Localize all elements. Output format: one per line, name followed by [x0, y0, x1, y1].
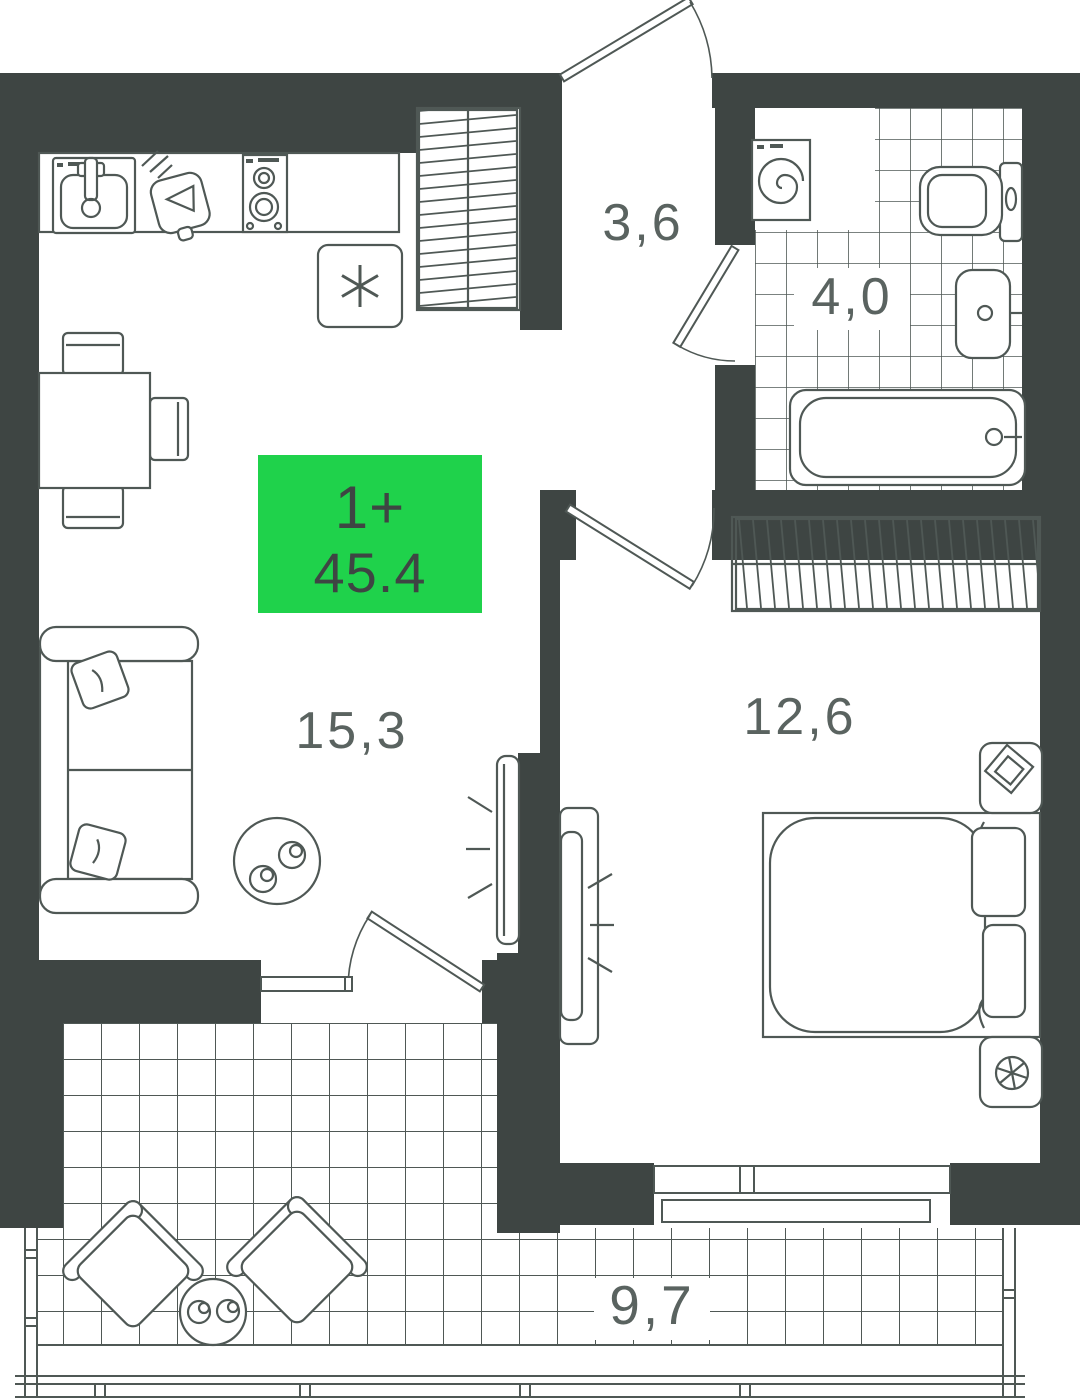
bathroom-area-label: 4,0 [811, 268, 892, 326]
balcony-table-icon [180, 1279, 246, 1345]
nightstand-lamp-icon [980, 743, 1042, 813]
living-kitchen-area-label: 15,3 [295, 702, 408, 760]
living-room-window-icon [261, 977, 352, 991]
sofa-icon [40, 627, 198, 913]
coffee-table-icon [234, 818, 320, 904]
apartment-badge: 1+ 45.4 [258, 455, 482, 613]
bedroom-window-icon [654, 1163, 950, 1225]
floor-plan-page: 3,6 4,0 15,3 12,6 9,7 1+ 45.4 [0, 0, 1080, 1400]
balcony-area-label: 9,7 [609, 1274, 694, 1336]
nightstand-fan-icon [980, 1037, 1042, 1107]
hallway-area-label: 3,6 [602, 194, 683, 252]
kitchen-sink-icon [53, 158, 135, 233]
wardrobe-hatch-icon [732, 517, 1040, 611]
apartment-type-label: 1+ [335, 474, 405, 541]
fridge-snowflake-icon [318, 245, 402, 327]
stove-icon [243, 155, 287, 232]
apartment-area-value: 45.4 [314, 541, 427, 604]
bedroom-area-label: 12,6 [743, 688, 856, 746]
toilet-icon [920, 163, 1022, 241]
floor-plan: 3,6 4,0 15,3 12,6 9,7 1+ 45.4 [0, 0, 1080, 1400]
bed-icon [763, 813, 1040, 1037]
washing-machine-icon [752, 140, 810, 220]
bathtub-icon [790, 390, 1025, 485]
closet-hatch-icon [417, 108, 520, 310]
